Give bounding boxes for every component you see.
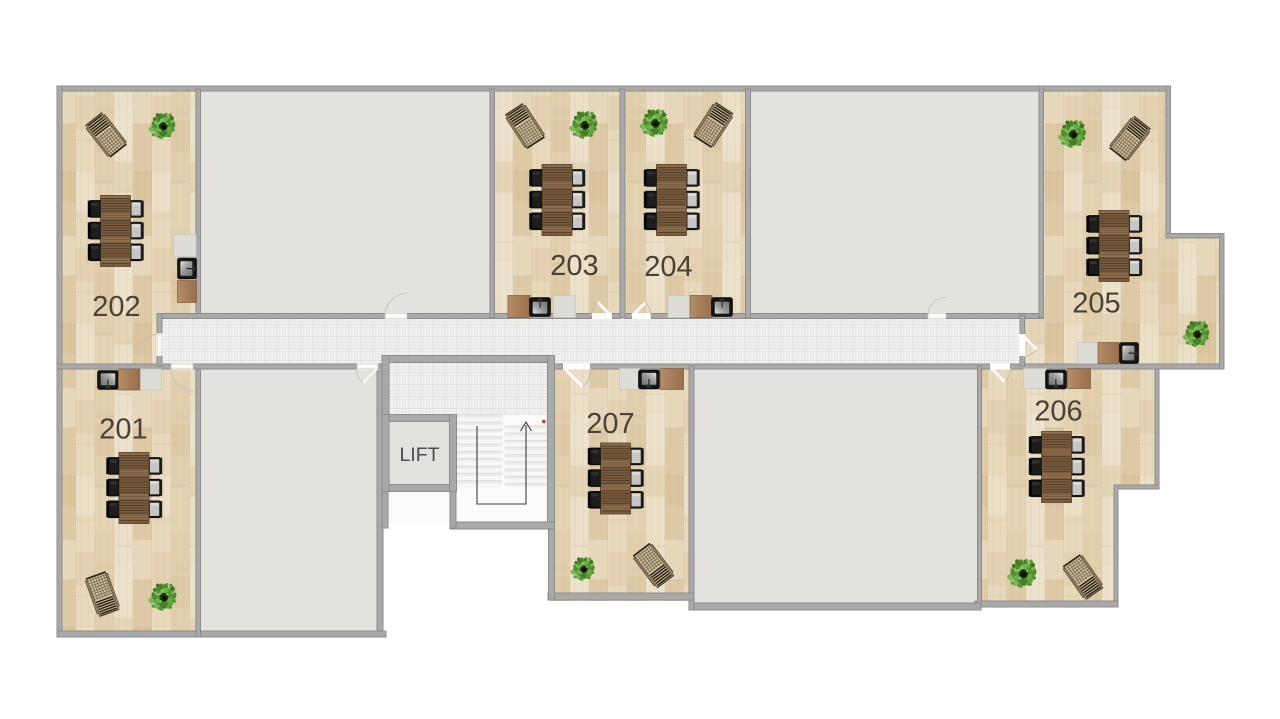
svg-text:LIFT: LIFT <box>399 444 439 466</box>
svg-text:203: 203 <box>550 250 598 282</box>
svg-text:204: 204 <box>644 251 692 283</box>
svg-text:201: 201 <box>99 414 147 446</box>
svg-text:207: 207 <box>586 408 634 440</box>
svg-text:202: 202 <box>92 291 140 323</box>
svg-text:206: 206 <box>1034 396 1082 428</box>
svg-text:205: 205 <box>1072 288 1120 320</box>
